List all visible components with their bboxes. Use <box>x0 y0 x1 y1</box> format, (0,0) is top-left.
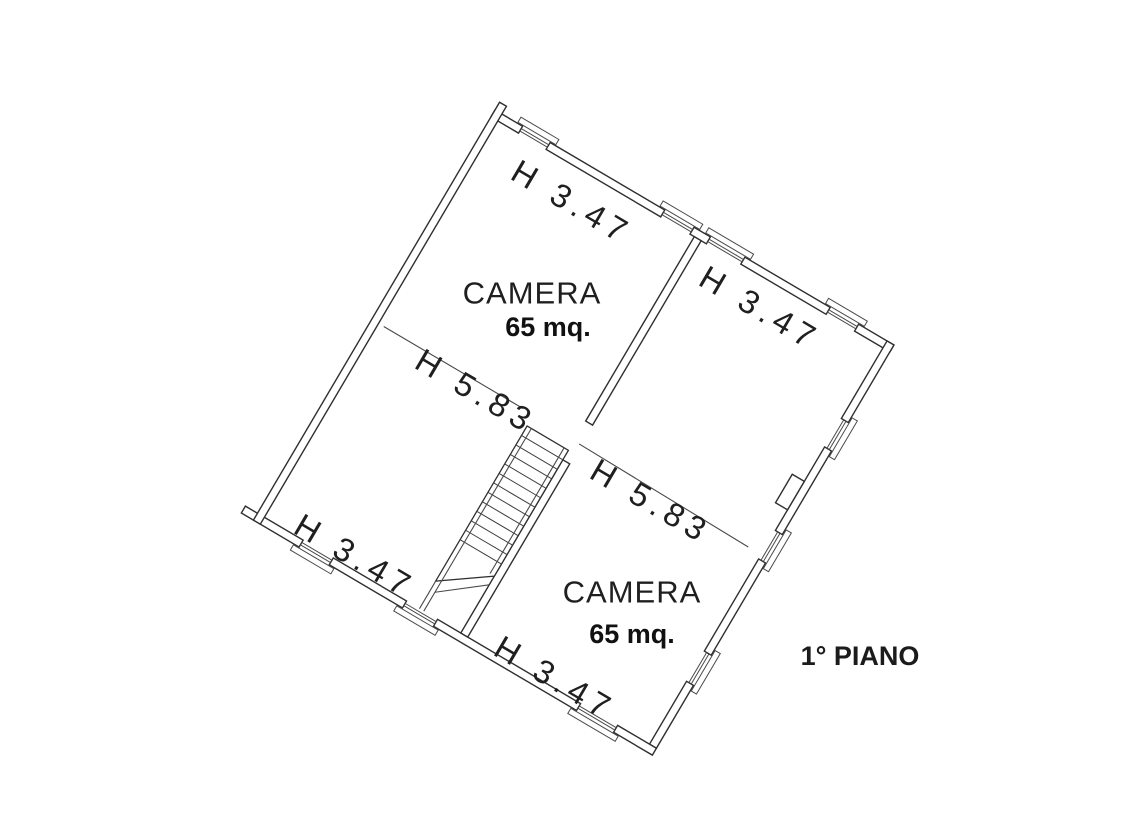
labels: H 3.47 H 3.47 H 5.83 H 5.83 H 3.47 H 3.4… <box>288 152 919 728</box>
staircase <box>419 426 568 633</box>
dimension-label-top-left: H 3.47 <box>505 152 639 252</box>
dimension-label-ridge-left: H 5.83 <box>409 341 543 441</box>
wall-segment <box>253 102 506 524</box>
floor-label: 1° PIANO <box>801 641 920 671</box>
stair-enclosure-wall <box>419 581 440 611</box>
wall-segment <box>586 237 702 425</box>
floorplan-page: H 3.47 H 3.47 H 5.83 H 5.83 H 3.47 H 3.4… <box>0 0 1131 821</box>
dimension-label-ridge-right: H 5.83 <box>584 451 718 551</box>
wall-segment <box>704 559 765 655</box>
wall-segment <box>841 341 894 423</box>
room-label-camera-1: CAMERA <box>463 276 602 311</box>
outer-wall-left <box>253 102 506 524</box>
area-label-camera-2: 65 mq. <box>589 619 675 649</box>
area-label-camera-1: 65 mq. <box>505 312 591 342</box>
floorplan-svg: H 3.47 H 3.47 H 5.83 H 5.83 H 3.47 H 3.4… <box>0 0 1131 821</box>
outer-wall-right <box>637 334 900 752</box>
room-label-camera-2: CAMERA <box>563 575 702 610</box>
wall-segment <box>650 681 694 748</box>
wall-segment <box>614 725 657 755</box>
